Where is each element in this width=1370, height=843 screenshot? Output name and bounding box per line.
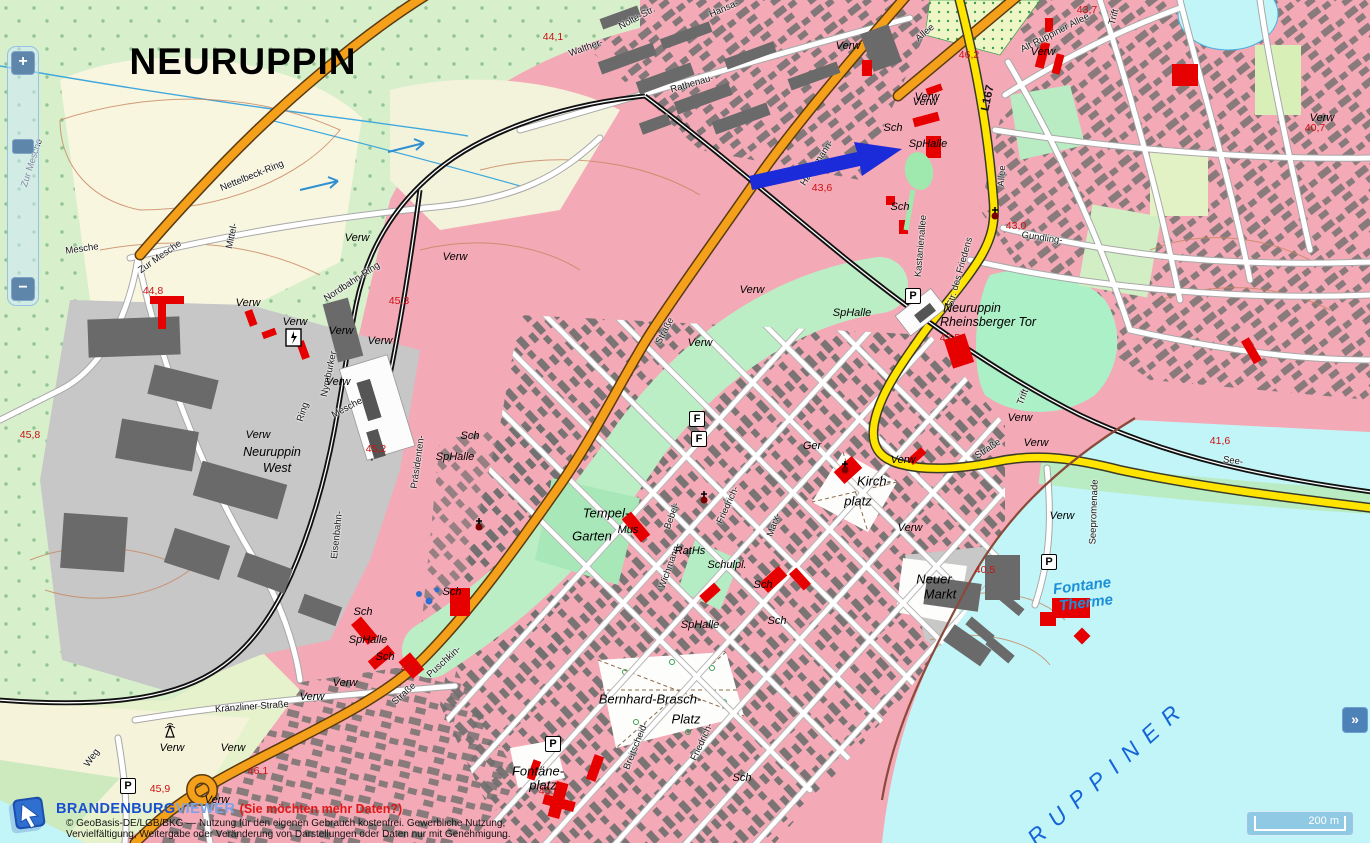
scale-label: 200 m xyxy=(1308,815,1339,827)
zoom-out-button[interactable]: − xyxy=(11,277,35,301)
zoom-slider[interactable]: + − xyxy=(7,46,39,306)
more-data-link[interactable]: (Sie möchten mehr Daten?) xyxy=(240,802,403,816)
zoom-slider-handle[interactable] xyxy=(12,139,34,154)
brandenburg-logo-icon[interactable] xyxy=(8,792,52,838)
map-viewport[interactable]: NEURUPPINZur MescheZur MescheMescheMitte… xyxy=(0,0,1370,843)
map-canvas[interactable] xyxy=(0,0,1370,843)
scale-bar: 200 m xyxy=(1246,811,1354,836)
zoom-in-button[interactable]: + xyxy=(11,51,35,75)
panel-toggle-button[interactable]: » xyxy=(1342,707,1368,733)
power-station-icon xyxy=(286,329,301,346)
